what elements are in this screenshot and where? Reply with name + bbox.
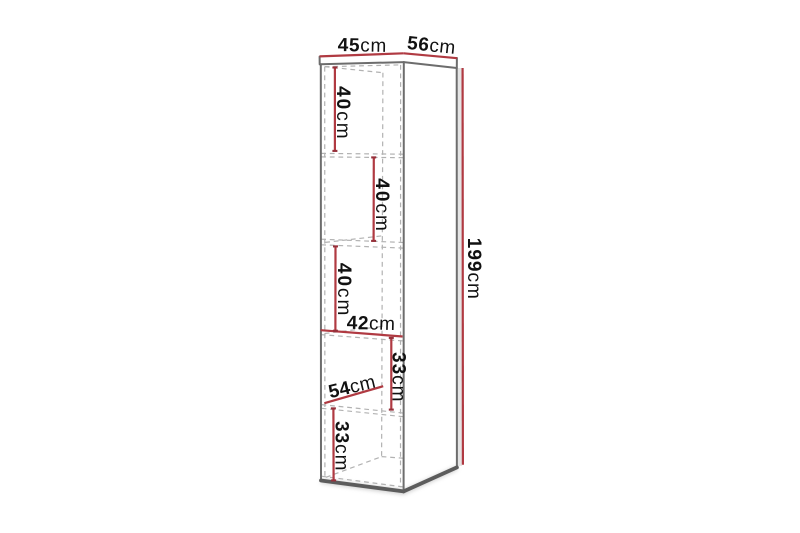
svg-text:199cm: 199cm [463, 238, 484, 300]
svg-text:33cm: 33cm [331, 421, 352, 471]
svg-text:40cm: 40cm [371, 178, 392, 232]
svg-text:40cm: 40cm [333, 263, 354, 317]
svg-text:45cm: 45cm [338, 35, 388, 57]
svg-text:42cm: 42cm [346, 313, 395, 335]
svg-text:40cm: 40cm [332, 86, 353, 140]
svg-text:54cm: 54cm [327, 372, 378, 404]
svg-text:33cm: 33cm [388, 352, 409, 402]
